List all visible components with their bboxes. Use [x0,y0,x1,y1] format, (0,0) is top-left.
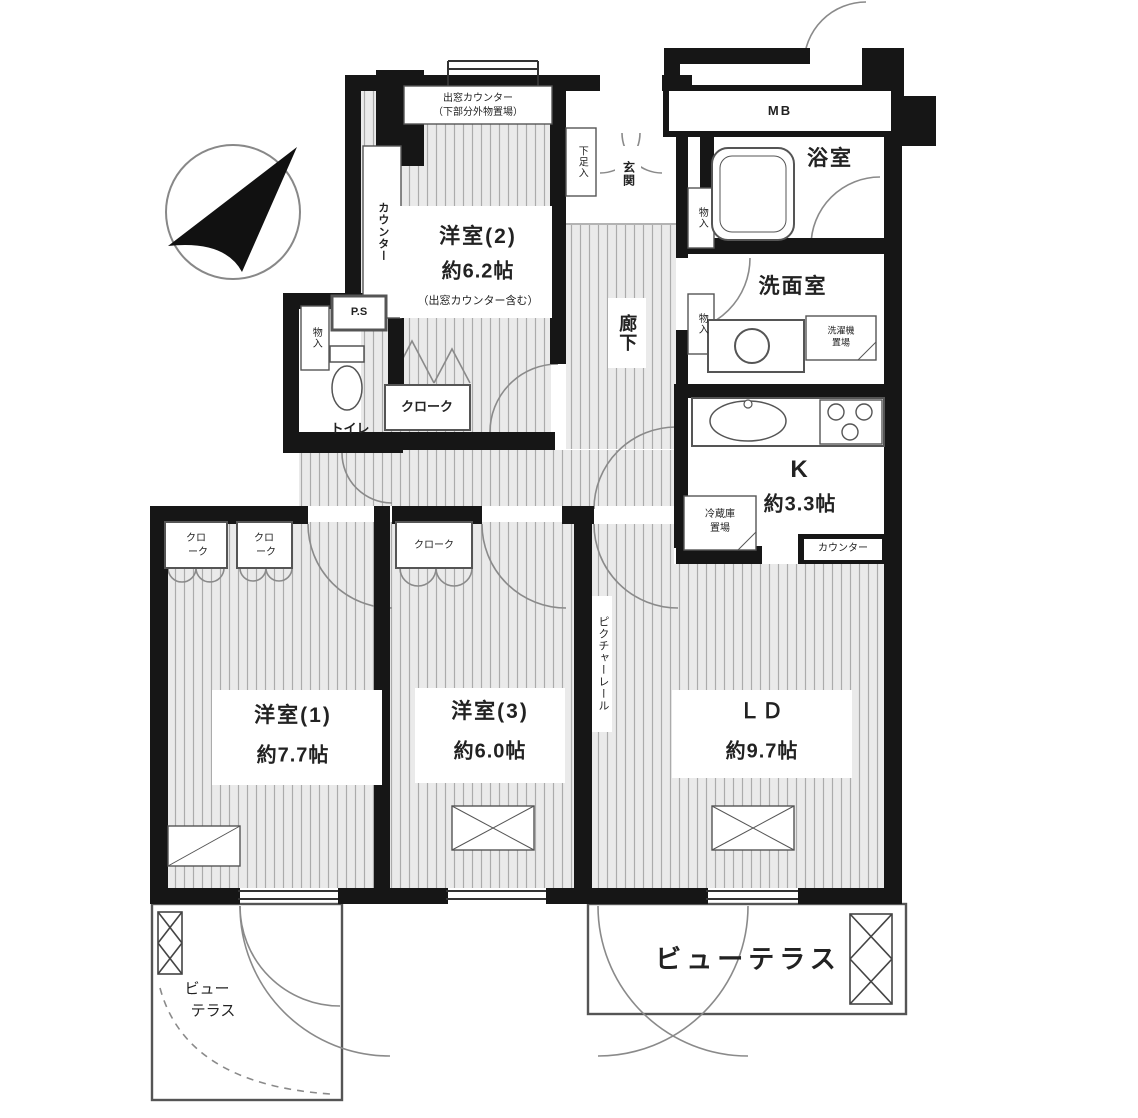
room-toilet-name: トイレ [330,421,369,437]
room-ld-size: 約9.7帖 [726,740,799,765]
room-bath-name: 浴室 [807,146,853,172]
room-western2-note: （出窓カウンター含む） [418,295,539,309]
cloak2-line2: ーク [256,547,276,560]
mb-label: MB [768,103,792,119]
storage-label-1: 物入 [695,207,708,229]
cloak1-line2: ーク [188,547,208,560]
room-kitchen-name: K [790,455,809,485]
terrace-left-line2: テラス [191,1003,236,1022]
room-ld-name: ＬＤ [739,699,785,725]
toilet-bowl [332,366,362,410]
north-arrow [166,145,300,279]
room-western3-name: 洋室(3) [451,699,529,725]
terrace-left-line1: ビュー [184,981,229,1000]
cloak3-label: クローク [414,540,454,553]
room-washroom-name: 洗面室 [759,274,828,300]
room-western1-size: 約7.7帖 [257,744,330,769]
counter-label: カウンター [375,202,389,262]
storage-label-3: 物入 [309,327,322,349]
fridge-label-line2: 置場 [710,523,730,536]
bay-window-label-line1: 出窓カウンター [443,93,513,106]
cloak-label-main: クローク [401,399,453,415]
room-western2-name: 洋室(2) [439,224,517,250]
bay-window-label-line2: （下部分外物置場） [433,107,523,120]
room-kitchen-size: 約3.3帖 [764,493,837,518]
fridge-label-line1: 冷蔵庫 [705,509,735,522]
cloak1-line1: クロ [186,533,206,546]
washer-label-line1: 洗濯機 [827,325,854,336]
terrace-main-label: ビューテラス [655,943,840,976]
storage-label-2: 物入 [695,313,708,335]
room-western2-size: 約6.2帖 [442,260,515,285]
ps-label: P.S [351,306,367,320]
toilet-tank [330,346,364,362]
floorplan-drawing [0,0,1138,1118]
room-hallway-name: 廊下 [616,314,639,352]
cloak2-line1: クロ [254,533,274,546]
terraces [152,904,906,1100]
kitchen-counter-label: カウンター [818,543,868,556]
floorplan: 出窓カウンター （下部分外物置場） カウンター 洋室(2) 約6.2帖 （出窓カ… [0,0,1138,1118]
room-western1-name: 洋室(1) [254,703,332,729]
picture-rail-label: ピクチャーレール [595,616,609,712]
shoe-storage-label: 下足入 [575,146,588,179]
room-entrance-name: 玄関 [621,161,636,187]
washer-label-line2: 置場 [832,337,850,348]
room-western3-size: 約6.0帖 [454,740,527,765]
wash-basin [735,329,769,363]
